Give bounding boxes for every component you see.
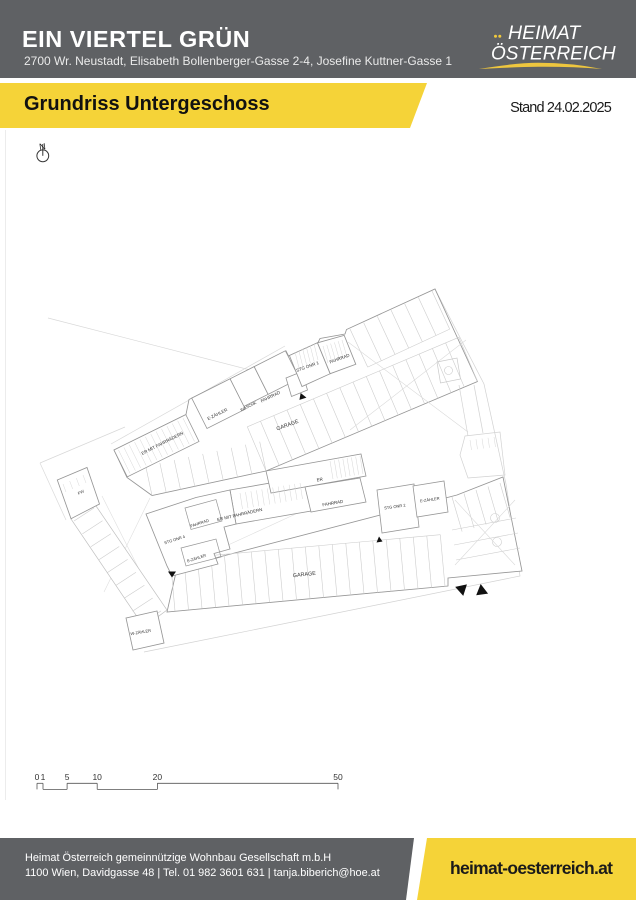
svg-text:0: 0 (35, 772, 40, 782)
svg-text:ER: ER (316, 477, 323, 483)
svg-text:1: 1 (41, 772, 46, 782)
svg-text:5: 5 (65, 772, 70, 782)
svg-text:50: 50 (333, 772, 343, 782)
svg-text:10: 10 (92, 772, 102, 782)
svg-text:N: N (38, 141, 46, 152)
svg-text:20: 20 (153, 772, 163, 782)
